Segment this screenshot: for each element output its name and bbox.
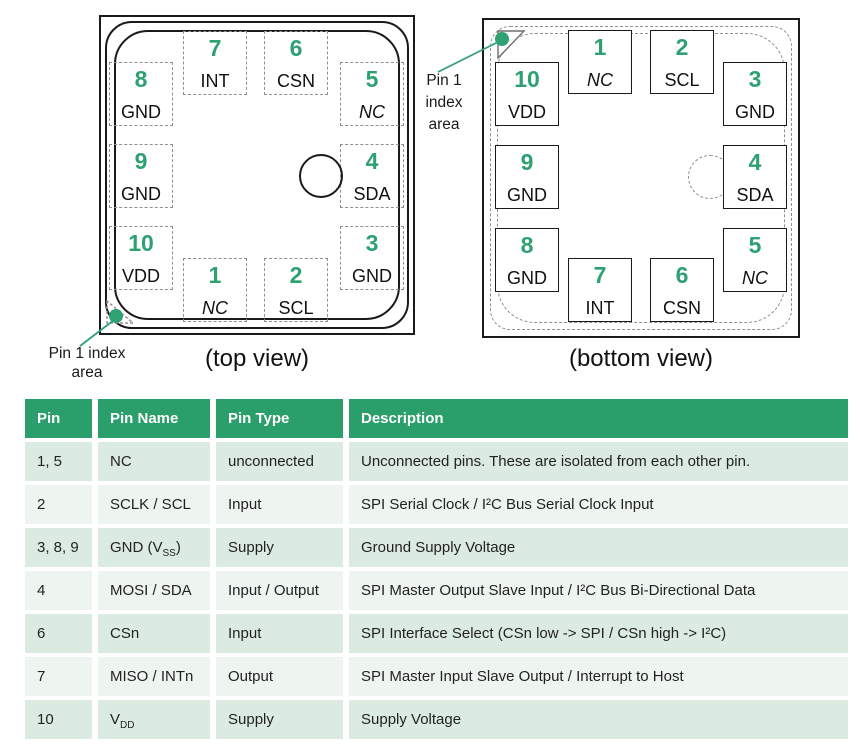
pin-number: 8 (135, 65, 148, 93)
pin-name: GND (121, 182, 161, 206)
pin-name: CSN (277, 69, 315, 93)
pad-pin9: 9 GND (495, 145, 559, 209)
pin-cell: 3, 8, 9 (25, 528, 92, 567)
pad-pin4: 4 SDA (340, 144, 404, 208)
pin-number: 5 (366, 65, 379, 93)
pin-name: NC (742, 266, 768, 290)
pin-number: 2 (290, 261, 303, 289)
pin1-index-label-line: Pin 1 (414, 70, 474, 92)
pad-pin5: 5 NC (340, 62, 404, 126)
pin-number: 9 (135, 147, 148, 175)
pin-name-cell: VDD (98, 700, 210, 739)
pinout-figure: 7 INT 6 CSN 8 GND 9 GND 10 VDD 5 NC 4 SD… (0, 0, 861, 752)
pad-pin3: 3 GND (340, 226, 404, 290)
pin-name-cell: CSn (98, 614, 210, 653)
table-row: 7 MISO / INTn Output SPI Master Input Sl… (25, 657, 848, 696)
description-cell: Supply Voltage (349, 700, 848, 739)
pin-description-table: Pin Pin Name Pin Type Description 1, 5 N… (19, 395, 854, 743)
pin-name: GND (507, 183, 547, 207)
pin-type-cell: Supply (216, 528, 343, 567)
pin-name: GND (507, 266, 547, 290)
table-row: 1, 5 NC unconnected Unconnected pins. Th… (25, 442, 848, 481)
table-row: 2 SCLK / SCL Input SPI Serial Clock / I²… (25, 485, 848, 524)
pin-number: 4 (366, 147, 379, 175)
pin-number: 7 (594, 261, 607, 289)
header-pin-name: Pin Name (98, 399, 210, 438)
pin-number: 10 (128, 229, 154, 257)
pin-cell: 6 (25, 614, 92, 653)
description-cell: SPI Interface Select (CSn low -> SPI / C… (349, 614, 848, 653)
pin-name-cell: MOSI / SDA (98, 571, 210, 610)
pin-number: 3 (749, 65, 762, 93)
pin-name: NC (587, 68, 613, 92)
pin-cell: 7 (25, 657, 92, 696)
description-cell: Ground Supply Voltage (349, 528, 848, 567)
pin-type-cell: Input (216, 485, 343, 524)
pin-name-cell: SCLK / SCL (98, 485, 210, 524)
table-row: 4 MOSI / SDA Input / Output SPI Master O… (25, 571, 848, 610)
pin-name: VDD (122, 264, 160, 288)
pin-name: INT (586, 296, 615, 320)
chip-top-view: 7 INT 6 CSN 8 GND 9 GND 10 VDD 5 NC 4 SD… (99, 15, 415, 335)
pin-name: SDA (736, 183, 773, 207)
pin-name: VDD (508, 100, 546, 124)
pin-type-cell: unconnected (216, 442, 343, 481)
description-cell: SPI Master Output Slave Input / I²C Bus … (349, 571, 848, 610)
description-cell: SPI Master Input Slave Output / Interrup… (349, 657, 848, 696)
table-header-row: Pin Pin Name Pin Type Description (25, 399, 848, 438)
pin-number: 9 (521, 148, 534, 176)
pin1-index-label-line: area (414, 114, 474, 136)
pin-type-cell: Input / Output (216, 571, 343, 610)
pin-type-cell: Output (216, 657, 343, 696)
table-row: 3, 8, 9 GND (VSS) Supply Ground Supply V… (25, 528, 848, 567)
header-pin-type: Pin Type (216, 399, 343, 438)
pin-name: INT (201, 69, 230, 93)
pin-cell: 10 (25, 700, 92, 739)
pad-pin1: 1 NC (568, 30, 632, 94)
pin-name: GND (735, 100, 775, 124)
pin-number: 4 (749, 148, 762, 176)
pad-pin3: 3 GND (723, 62, 787, 126)
pad-pin9: 9 GND (109, 144, 173, 208)
pin-cell: 4 (25, 571, 92, 610)
pin-number: 3 (366, 229, 379, 257)
pin-name: NC (359, 100, 385, 124)
pin-number: 1 (594, 33, 607, 61)
description-cell: SPI Serial Clock / I²C Bus Serial Clock … (349, 485, 848, 524)
pad-pin8: 8 GND (109, 62, 173, 126)
pad-pin8: 8 GND (495, 228, 559, 292)
pin-type-cell: Supply (216, 700, 343, 739)
header-description: Description (349, 399, 848, 438)
description-cell: Unconnected pins. These are isolated fro… (349, 442, 848, 481)
pin-name: GND (121, 100, 161, 124)
pin-number: 1 (209, 261, 222, 289)
pin-name: SCL (278, 296, 313, 320)
pad-pin2: 2 SCL (264, 258, 328, 322)
vent-hole-circle (299, 154, 343, 198)
pad-pin4: 4 SDA (723, 145, 787, 209)
table-row: 10 VDD Supply Supply Voltage (25, 700, 848, 739)
pin-name: CSN (663, 296, 701, 320)
pin-name: NC (202, 296, 228, 320)
bottom-view-caption: (bottom view) (482, 345, 800, 373)
pin-name: SCL (664, 68, 699, 92)
pad-pin6: 6 CSN (264, 31, 328, 95)
header-pin: Pin (25, 399, 92, 438)
pin-number: 8 (521, 231, 534, 259)
pin-number: 6 (290, 34, 303, 62)
pin-name-cell: MISO / INTn (98, 657, 210, 696)
pin-name: GND (352, 264, 392, 288)
pin-number: 10 (514, 65, 540, 93)
pad-pin10: 10 VDD (109, 226, 173, 290)
pin-number: 5 (749, 231, 762, 259)
pad-pin7: 7 INT (183, 31, 247, 95)
pin-name: SDA (353, 182, 390, 206)
pin-number: 2 (676, 33, 689, 61)
pin1-index-label: Pin 1 index area (414, 70, 474, 136)
pad-pin2: 2 SCL (650, 30, 714, 94)
table-row: 6 CSn Input SPI Interface Select (CSn lo… (25, 614, 848, 653)
pin-cell: 2 (25, 485, 92, 524)
pad-pin1: 1 NC (183, 258, 247, 322)
pin-name-cell: GND (VSS) (98, 528, 210, 567)
pin-cell: 1, 5 (25, 442, 92, 481)
pad-pin5: 5 NC (723, 228, 787, 292)
chip-bottom-view: 1 NC 2 SCL 10 VDD 9 GND 8 GND 3 GND 4 SD… (482, 18, 800, 338)
pin-name-cell: NC (98, 442, 210, 481)
pin-number: 6 (676, 261, 689, 289)
pin1-index-label-line: index (414, 92, 474, 114)
pad-pin7: 7 INT (568, 258, 632, 322)
pad-pin6: 6 CSN (650, 258, 714, 322)
top-view-caption: (top view) (99, 345, 415, 373)
pin-number: 7 (209, 34, 222, 62)
pin-type-cell: Input (216, 614, 343, 653)
